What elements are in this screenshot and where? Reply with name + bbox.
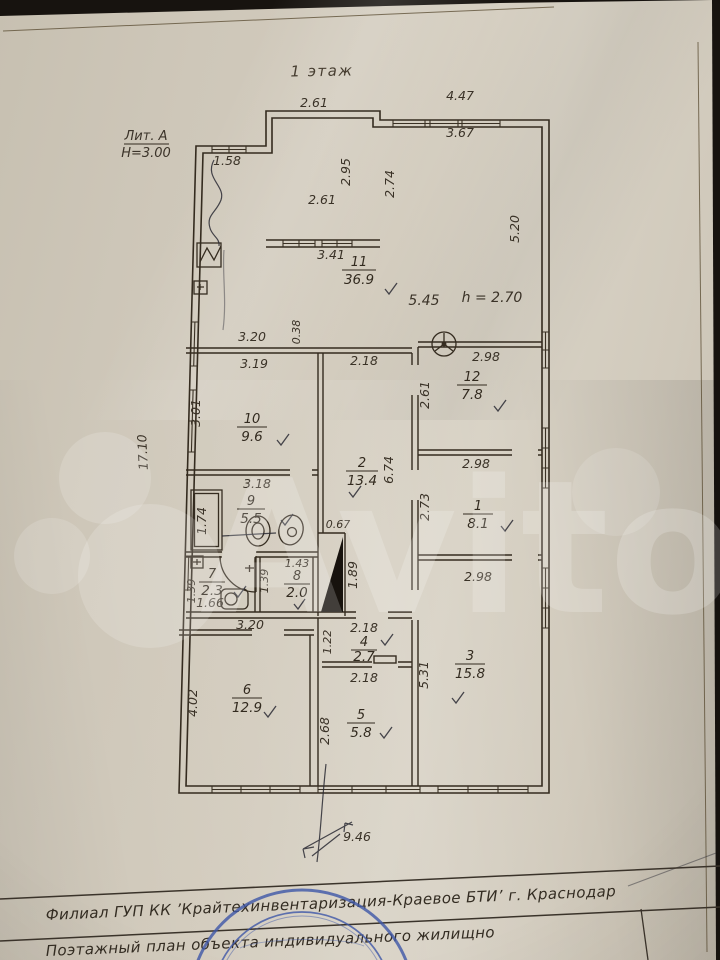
dim-square-side: 2.95 (338, 158, 353, 186)
dim-top-window-a: 4.47 (446, 88, 474, 103)
svg-text:36.9: 36.9 (344, 272, 374, 288)
dim-entry: 1.58 (213, 153, 241, 168)
dim-r6-side: 4.02 (185, 689, 200, 717)
dim-hall-width: 3.20 (238, 329, 266, 344)
dim-r5-top: 2.18 (350, 670, 378, 685)
svg-text:10: 10 (244, 412, 261, 427)
dim-r12-side: 2.61 (417, 381, 432, 409)
boiler-zigzag-icon (200, 246, 221, 262)
floor-title: 1 этаж (290, 61, 353, 80)
room-label-11: 11 36.9 (342, 255, 376, 288)
dim-r5-side: 2.68 (317, 717, 332, 745)
dim-r10-top: 3.19 (240, 356, 268, 371)
building-height-label: Н=3.00 (121, 146, 171, 161)
dim-r12-top: 2.98 (472, 349, 500, 364)
floor-plan-drawing: 1 этаж Лит. А Н=3.00 (0, 0, 720, 960)
svg-text:5.8: 5.8 (350, 725, 371, 741)
watermark-text: Avito (200, 440, 720, 656)
svg-text:11: 11 (351, 255, 368, 270)
dim-r3-side: 5.31 (416, 661, 431, 689)
dim-r10-side: 3.01 (188, 399, 203, 427)
svg-text:5: 5 (357, 708, 365, 723)
svg-text:15.8: 15.8 (455, 666, 485, 682)
room-label-12: 12 7.8 (457, 370, 487, 403)
footer: Филиал ГУП КК ’Крайтехинвентаризация-Кра… (0, 866, 720, 960)
dim-r2-top: 2.18 (350, 353, 378, 368)
dim-square-bottom: 3.41 (317, 247, 345, 262)
watermark: Avito (14, 432, 720, 656)
pen-scribble (209, 160, 222, 246)
ceiling-height-note: h = 2.70 (462, 290, 523, 306)
room-label-5: 5 5.8 (347, 708, 375, 741)
lit-label: Лит. А (124, 129, 168, 144)
dim-right-top: 5.20 (507, 215, 522, 243)
room-label-6: 6 12.9 (232, 683, 262, 716)
dim-top-window-b: 3.67 (446, 125, 474, 140)
svg-text:12: 12 (464, 370, 481, 385)
svg-text:12.9: 12.9 (232, 700, 262, 716)
footer-line1: Филиал ГУП КК ’Крайтехинвентаризация-Кра… (45, 882, 616, 924)
footer-rule-vertical (641, 909, 648, 960)
dim-square-top: 2.61 (300, 95, 328, 110)
dim-porch-side: 2.74 (382, 170, 397, 198)
page-frame-top (3, 7, 554, 31)
photo-of-document: 1 этаж Лит. А Н=3.00 (0, 0, 720, 960)
svg-text:7.8: 7.8 (461, 387, 482, 403)
dim-square-inner: 2.61 (308, 192, 336, 207)
svg-text:6: 6 (243, 683, 251, 698)
hall-width-note: 5.45 (408, 293, 439, 309)
dim-jog: 0.38 (290, 320, 303, 345)
dim-overall-width: 9.46 (343, 829, 371, 844)
